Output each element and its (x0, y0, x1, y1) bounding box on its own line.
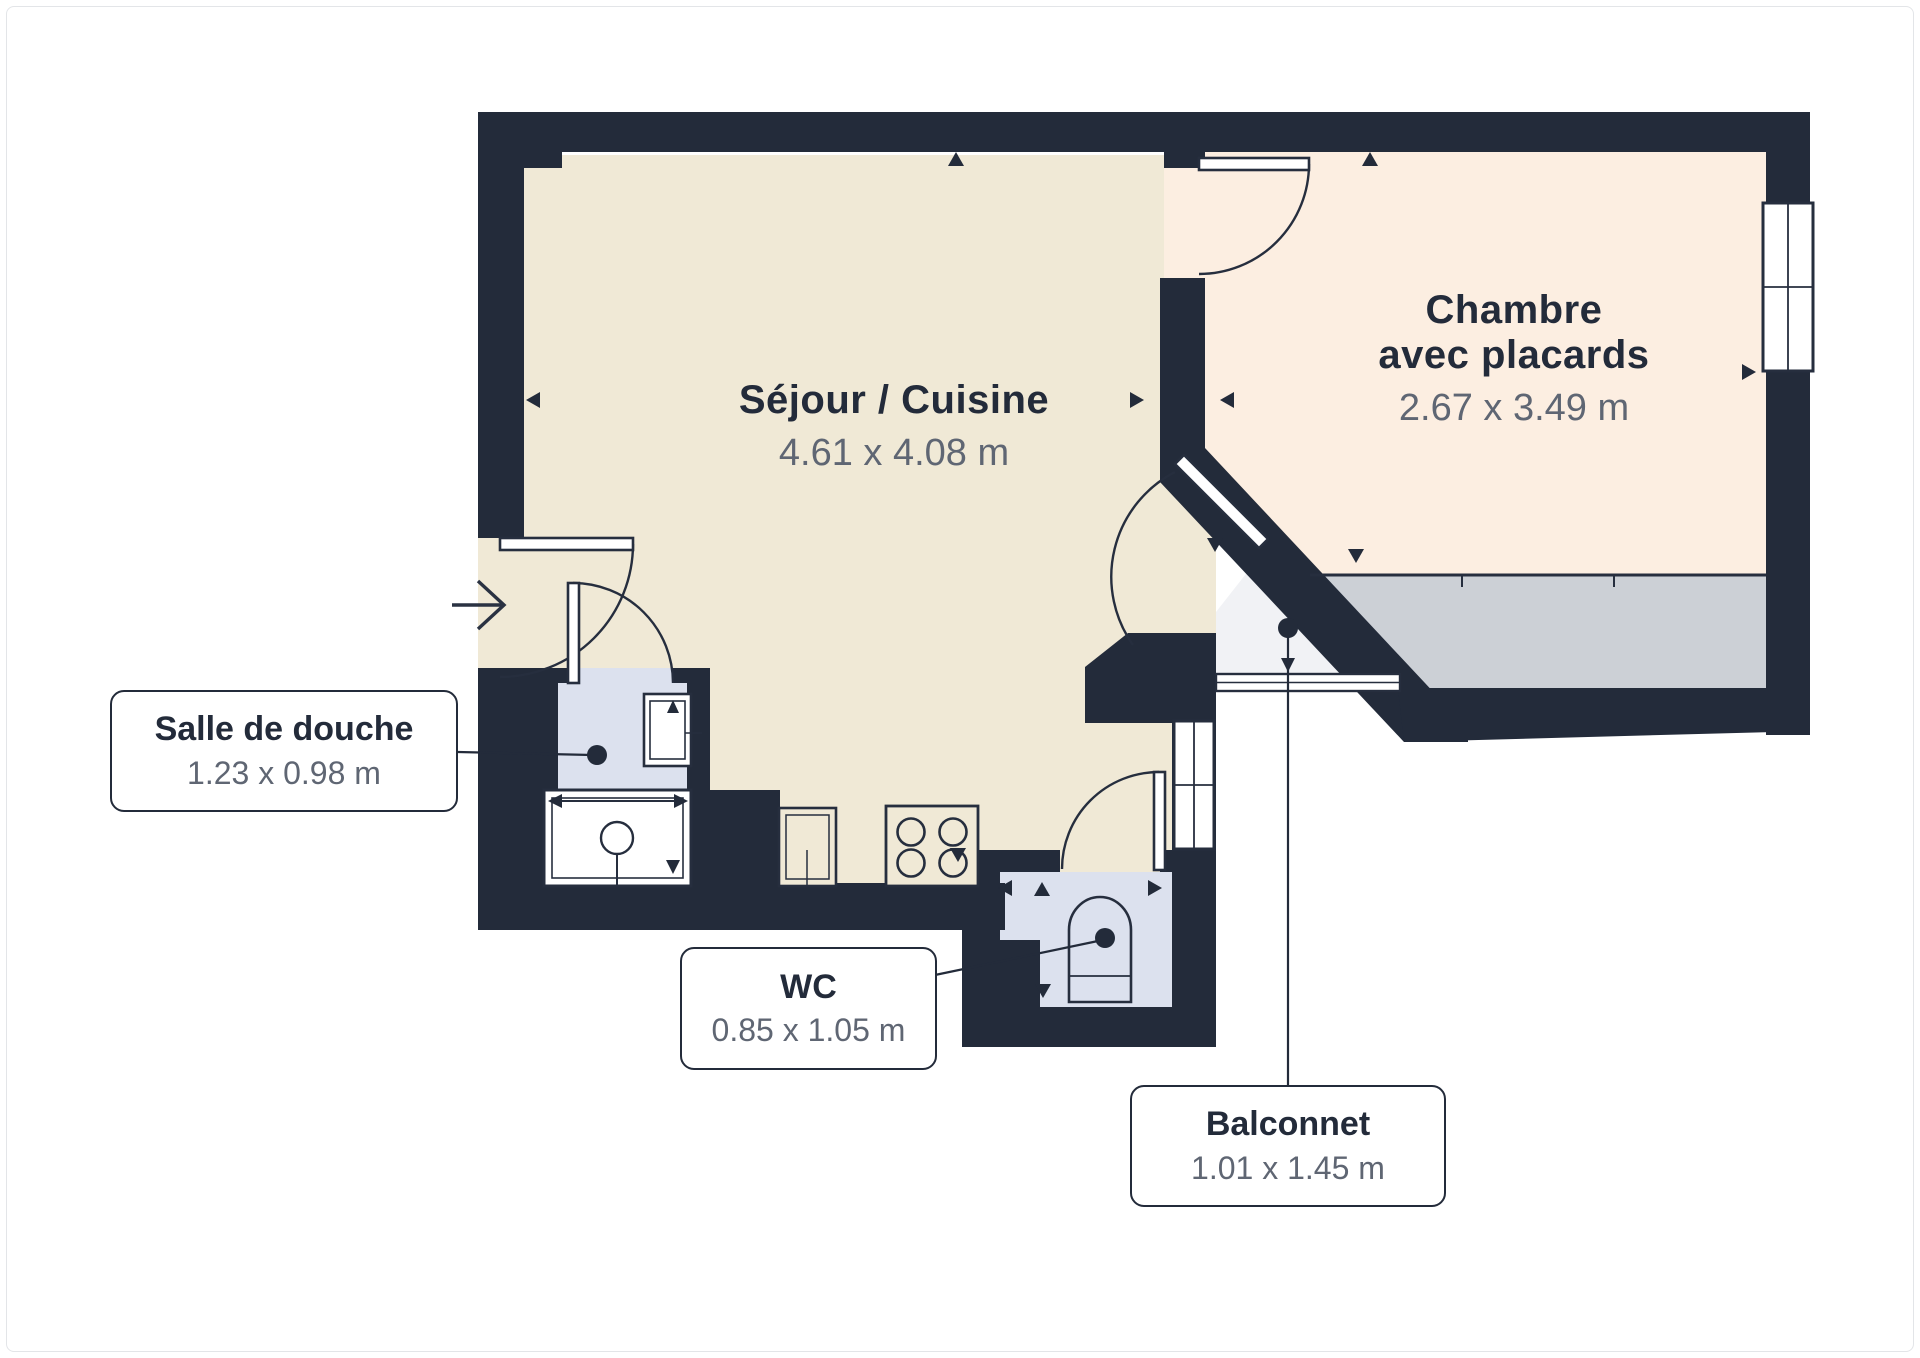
callout-dims: 1.01 x 1.45 m (1191, 1151, 1385, 1186)
stove-icon (886, 806, 978, 886)
wall-sdd-jamb-left (524, 668, 573, 683)
wall-bottom-left (478, 885, 688, 930)
callout-dims: 0.85 x 1.05 m (712, 1013, 906, 1048)
leader-dot (1095, 928, 1115, 948)
callout-name: Balconnet (1206, 1106, 1370, 1143)
window-icon-sejour (1174, 721, 1214, 849)
callout-balconnet: Balconnet 1.01 x 1.45 m (1130, 1085, 1446, 1207)
callout-salle-de-douche: Salle de douche 1.23 x 0.98 m (110, 690, 458, 812)
floor-plan-page: Séjour / Cuisine 4.61 x 4.08 m Chambre a… (0, 0, 1920, 1358)
chambre-floor (1205, 152, 1766, 575)
callout-name: Salle de douche (155, 711, 414, 748)
callout-name: WC (780, 969, 837, 1006)
wall-wc-jamb-left (1000, 850, 1060, 872)
counter-icon (779, 808, 836, 886)
wall-top (478, 112, 1810, 152)
callout-wc: WC 0.85 x 1.05 m (680, 947, 937, 1070)
wall-divider (1160, 278, 1205, 462)
floor-plan (0, 0, 1920, 1358)
chambre-doorway-floor (1164, 166, 1205, 278)
callout-dims: 1.23 x 0.98 m (187, 756, 381, 791)
wall-bottom-kitchen (688, 883, 1005, 930)
shower-icon (544, 790, 691, 886)
wall-wc-notch (1000, 940, 1040, 1007)
toilet-icon (1069, 897, 1131, 1002)
leader-dot (587, 745, 607, 765)
leader-dot (1278, 618, 1298, 638)
window-icon-chambre (1763, 203, 1813, 371)
wall-top-step (524, 152, 562, 168)
balcony-railing (1216, 674, 1400, 691)
wall-bottom-right (1398, 688, 1810, 742)
wall-left-upper (478, 112, 524, 538)
